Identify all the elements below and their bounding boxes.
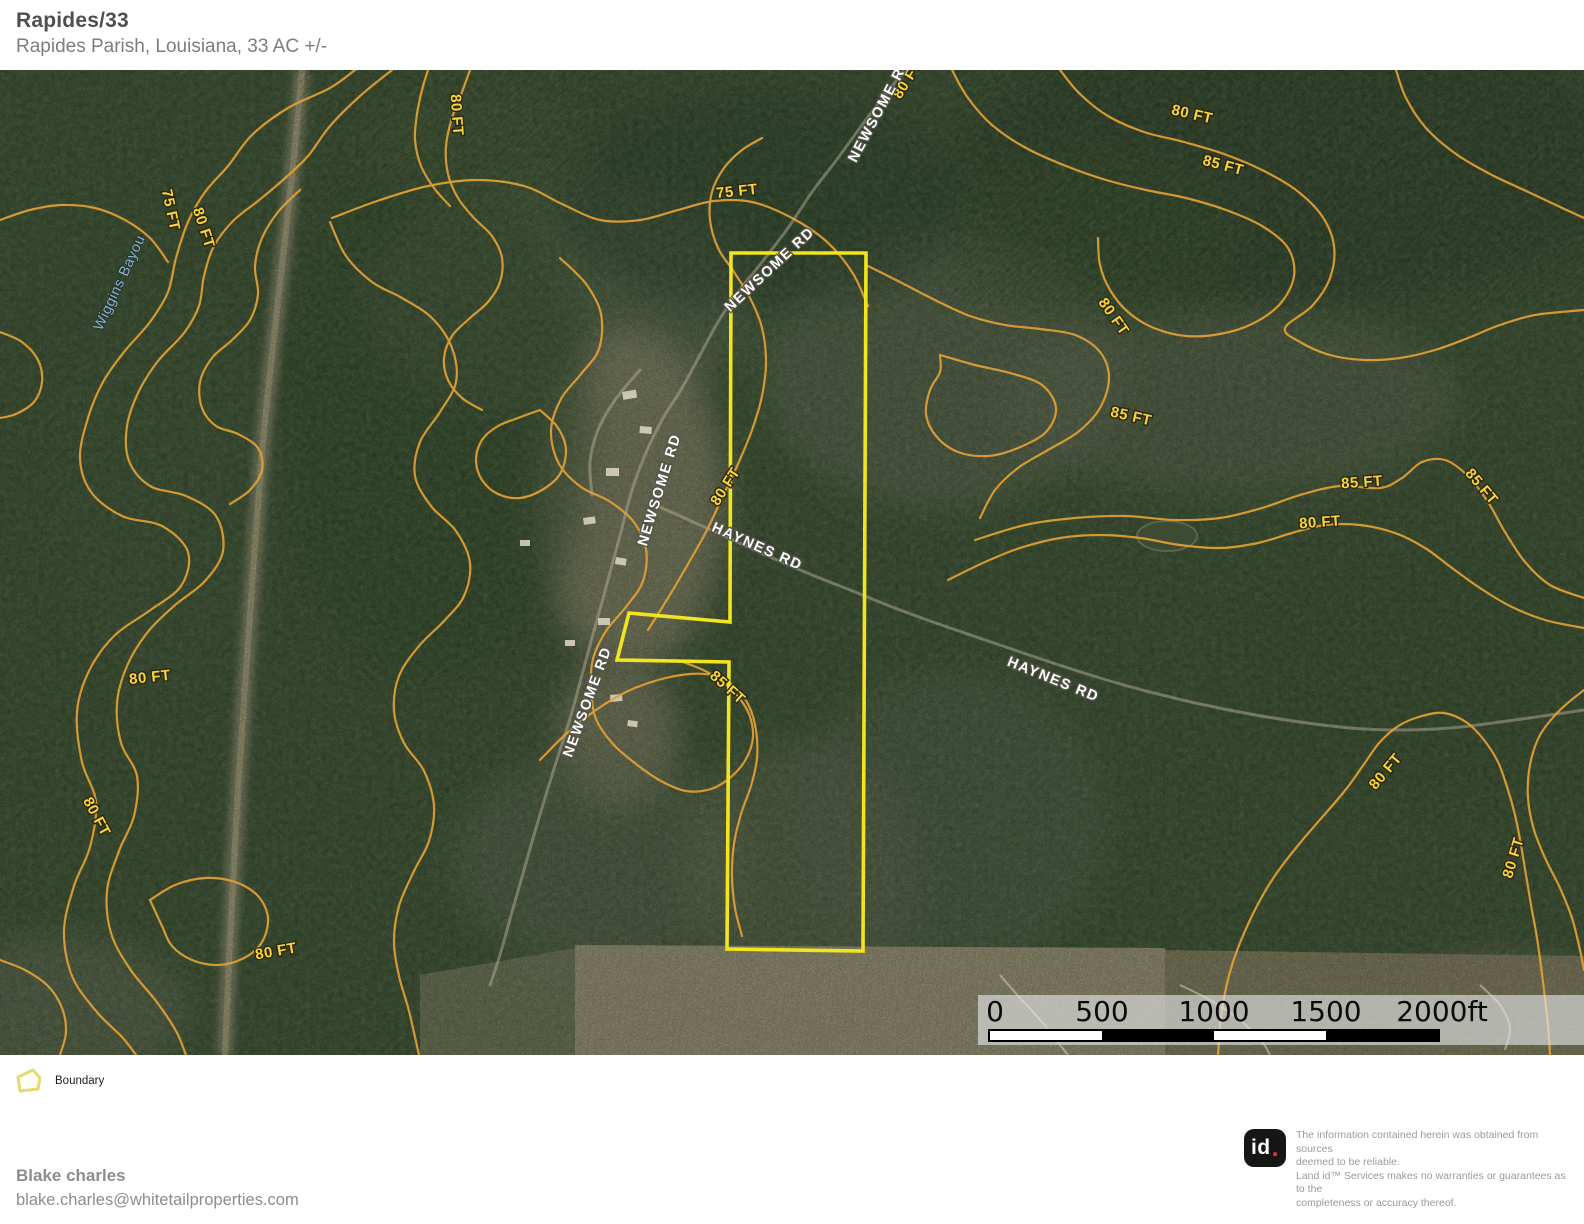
agent-name: Blake charles [16,1166,299,1186]
building [565,640,575,646]
agent-email: blake.charles@whitetailproperties.com [16,1191,299,1210]
contour-label: 80 FT [1299,513,1342,533]
building [520,540,530,546]
disclaimer-line: completeness or accuracy thereof. [1296,1197,1568,1211]
scale-segment [990,1031,1102,1040]
footer-row: Blake charles blake.charles@whitetailpro… [0,1129,1584,1224]
scale-label-1000: 1000 [1178,995,1249,1028]
land-id-logo: id. [1244,1129,1286,1167]
page-subtitle: Rapides Parish, Louisiana, 33 AC +/- [16,36,1568,58]
report-footer-area: Boundary Blake charles blake.charles@whi… [0,1055,1584,1224]
land-id-logo-text: id [1251,1136,1271,1160]
building [639,426,652,434]
scale-label-0: 0 [986,995,1004,1028]
scale-bar-track [988,1029,1440,1042]
report-header: Rapides/33 Rapides Parish, Louisiana, 33… [0,0,1584,70]
building [606,468,619,476]
map-canvas: 80 FT75 FT80 FT75 FT80 FT80 FT85 FT80 FT… [0,70,1584,1055]
scale-segment [1214,1031,1326,1040]
contour-label: 85 FT [1341,473,1384,493]
scale-segment [1326,1031,1438,1040]
disclaimer: The information contained herein was obt… [1296,1129,1568,1210]
boundary-legend-label: Boundary [55,1075,104,1087]
disclaimer-line: Land id™ Services makes no warranties or… [1296,1170,1568,1197]
land-id-logo-dot: . [1272,1143,1279,1153]
scale-bar: 0 500 1000 1500 2000ft [978,995,1584,1045]
report-page: Rapides/33 Rapides Parish, Louisiana, 33… [0,0,1584,1224]
disclaimer-line: The information contained herein was obt… [1296,1129,1568,1156]
boundary-legend-icon [14,1068,44,1094]
legend: Boundary [0,1055,1584,1094]
building [598,618,610,625]
scale-label-500: 500 [1075,995,1128,1028]
scale-segment [1102,1031,1214,1040]
disclaimer-line: deemed to be reliable. [1296,1156,1568,1170]
contour-label: 80 FT [447,94,467,137]
scale-label-1500: 1500 [1290,995,1361,1028]
brand-block: id. The information contained herein was… [1244,1129,1568,1210]
scale-label-2000: 2000ft [1396,995,1488,1028]
page-title: Rapides/33 [16,9,1568,33]
satellite-map: 80 FT75 FT80 FT75 FT80 FT80 FT85 FT80 FT… [0,70,1584,1055]
agent-info: Blake charles blake.charles@whitetailpro… [16,1166,299,1210]
